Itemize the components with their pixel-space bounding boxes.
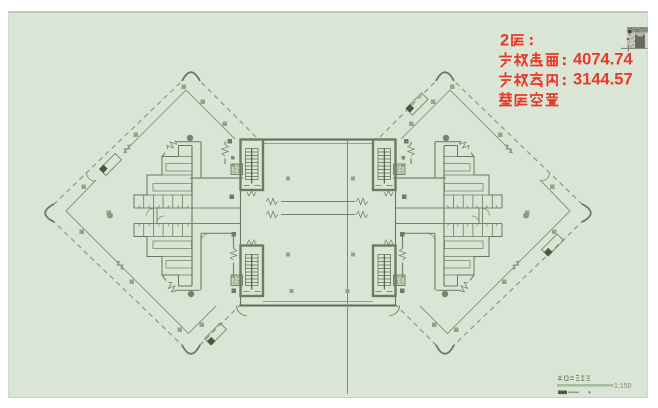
svg-text:3144.57: 3144.57	[573, 71, 633, 89]
svg-text:1:150: 1:150	[614, 383, 632, 390]
svg-text:4074.74: 4074.74	[573, 51, 633, 69]
svg-text:2: 2	[500, 32, 509, 50]
